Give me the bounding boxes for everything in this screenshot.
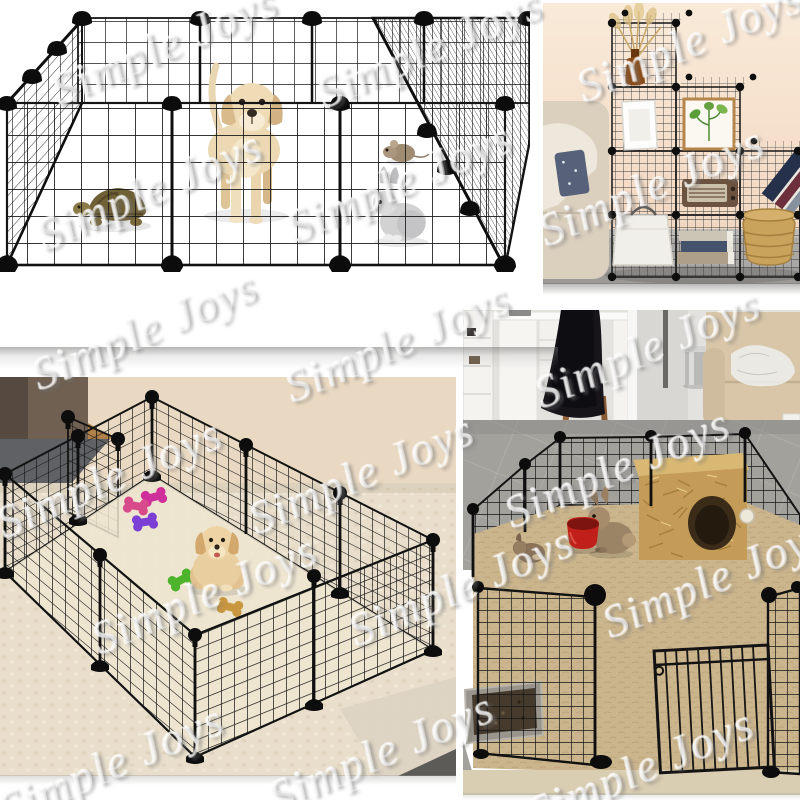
pen-front-left-panel bbox=[478, 588, 595, 765]
leaf-frame bbox=[684, 99, 734, 149]
bookshelf bbox=[463, 310, 493, 422]
sofa bbox=[543, 101, 609, 279]
playpen-white-scene bbox=[0, 0, 530, 292]
rabbit-pen-scene bbox=[463, 310, 800, 795]
book-stack bbox=[677, 231, 734, 264]
cube-storage-scene bbox=[543, 3, 800, 284]
product-collage: Simple Joys Simple Joys Simple Joys Simp… bbox=[0, 0, 800, 800]
beige-sofa bbox=[703, 312, 800, 425]
white-photo-frame bbox=[622, 100, 657, 150]
carpet-playpen-scene bbox=[0, 377, 456, 776]
shadow-under-cube-photo bbox=[543, 283, 800, 299]
photo-carpet-playpen bbox=[0, 377, 456, 776]
laptop bbox=[509, 310, 531, 316]
photo-playpen-white bbox=[0, 0, 530, 292]
photo-cube-storage bbox=[543, 3, 800, 284]
photo-rabbit-pen bbox=[463, 310, 800, 795]
food-bowl bbox=[566, 517, 600, 554]
hallway bbox=[628, 310, 688, 428]
radio bbox=[682, 179, 738, 207]
tag bbox=[740, 509, 754, 523]
pen-front-right-panel bbox=[768, 588, 800, 774]
white-tote-bag bbox=[613, 207, 673, 265]
shadow-under-carpet-photo bbox=[0, 775, 456, 785]
wicker-basket bbox=[743, 209, 795, 265]
